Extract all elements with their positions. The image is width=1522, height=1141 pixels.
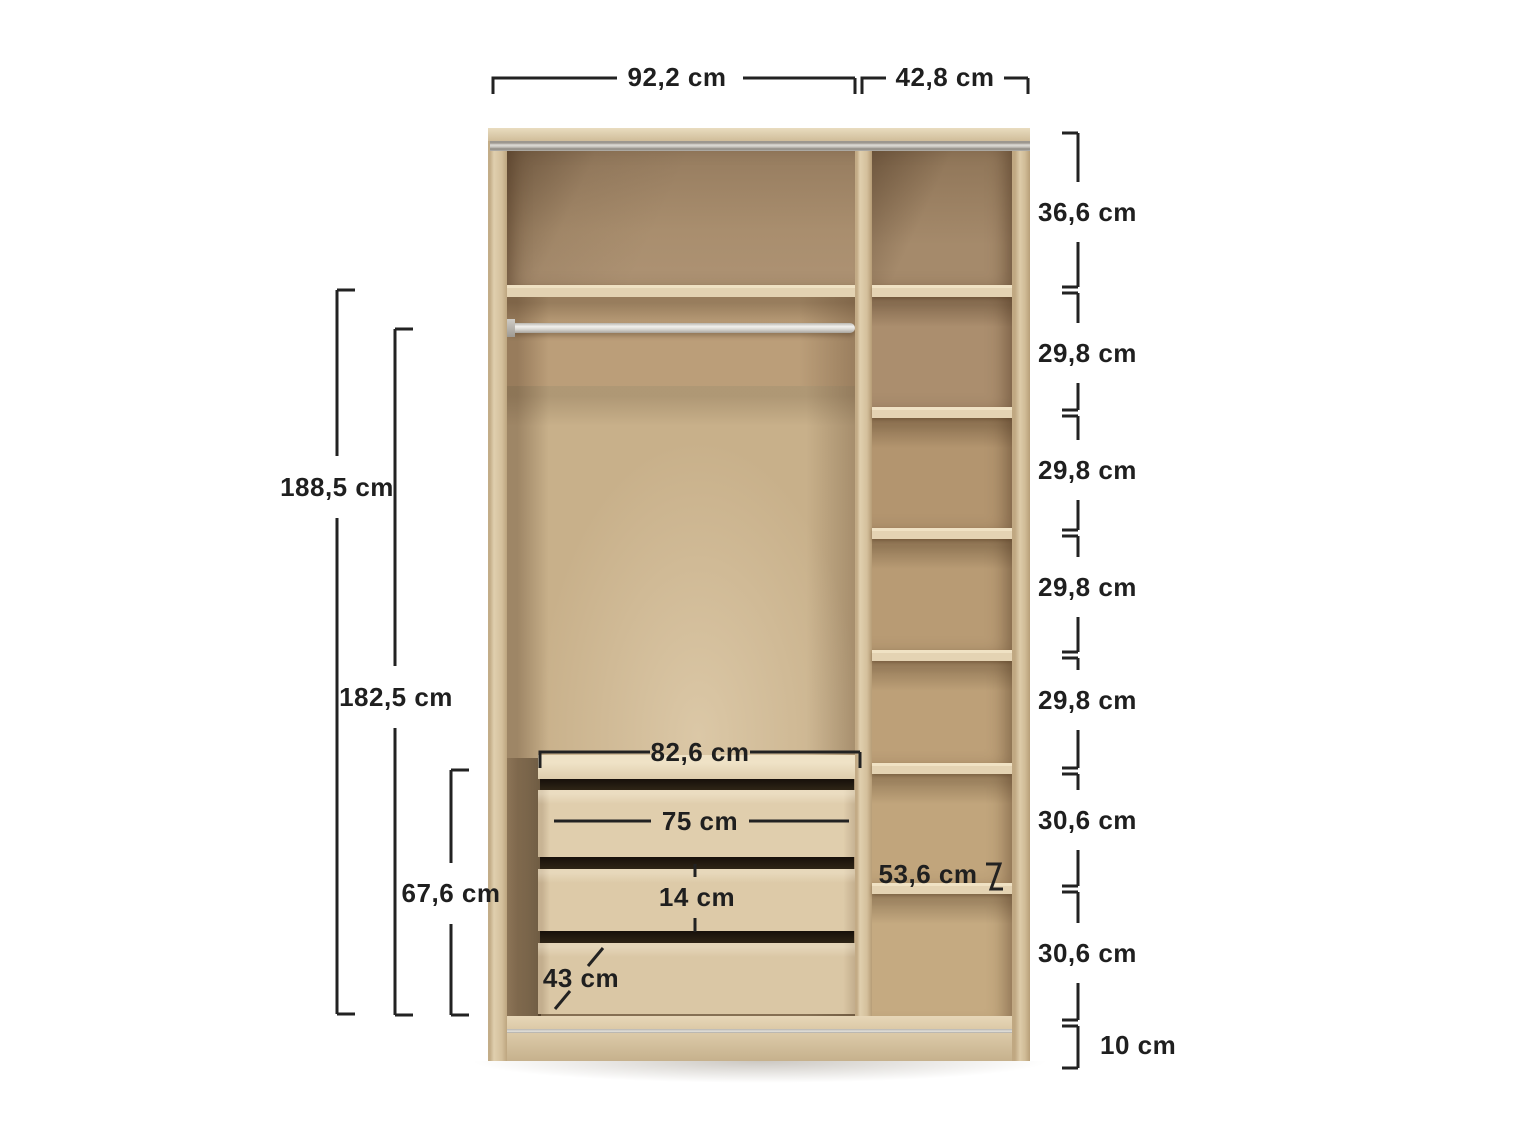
dim-label-drawer-front-height: 14 cm [659,884,735,910]
dim-label-right-section-6: 30,6 cm [1038,807,1137,833]
dim-label-shelf-depth: 53,6 cm [879,861,978,887]
dim-label-width-right-section: 42,8 cm [896,64,995,90]
dim-label-height-interior: 182,5 cm [339,684,453,710]
dim-label-plinth-height: 10 cm [1100,1032,1176,1058]
dim-line-height-total [337,290,355,1014]
dim-label-right-section-3: 29,8 cm [1038,457,1137,483]
dim-label-right-section-7: 30,6 cm [1038,940,1137,966]
dim-line-plinth [1062,1026,1078,1068]
dim-label-right-section-5: 29,8 cm [1038,687,1137,713]
dim-label-right-section-2: 29,8 cm [1038,340,1137,366]
dim-label-drawer-unit-height: 67,6 cm [402,880,501,906]
dim-label-drawer-unit-width: 82,6 cm [651,739,750,765]
dim-line-height-interior [395,329,413,1015]
dim-label-drawer-width: 75 cm [662,808,738,834]
dim-label-right-section-4: 29,8 cm [1038,574,1137,600]
dimension-lines [0,0,1522,1141]
dim-label-width-left-section: 92,2 cm [628,64,727,90]
dim-label-height-total: 188,5 cm [280,474,394,500]
wardrobe-dimension-diagram: 92,2 cm 42,8 cm 188,5 cm 182,5 cm 67,6 c… [0,0,1522,1141]
dim-label-drawer-depth: 43 cm [543,965,619,991]
dim-label-right-section-1: 36,6 cm [1038,199,1137,225]
dim-line-shelf-depth [986,864,1003,889]
